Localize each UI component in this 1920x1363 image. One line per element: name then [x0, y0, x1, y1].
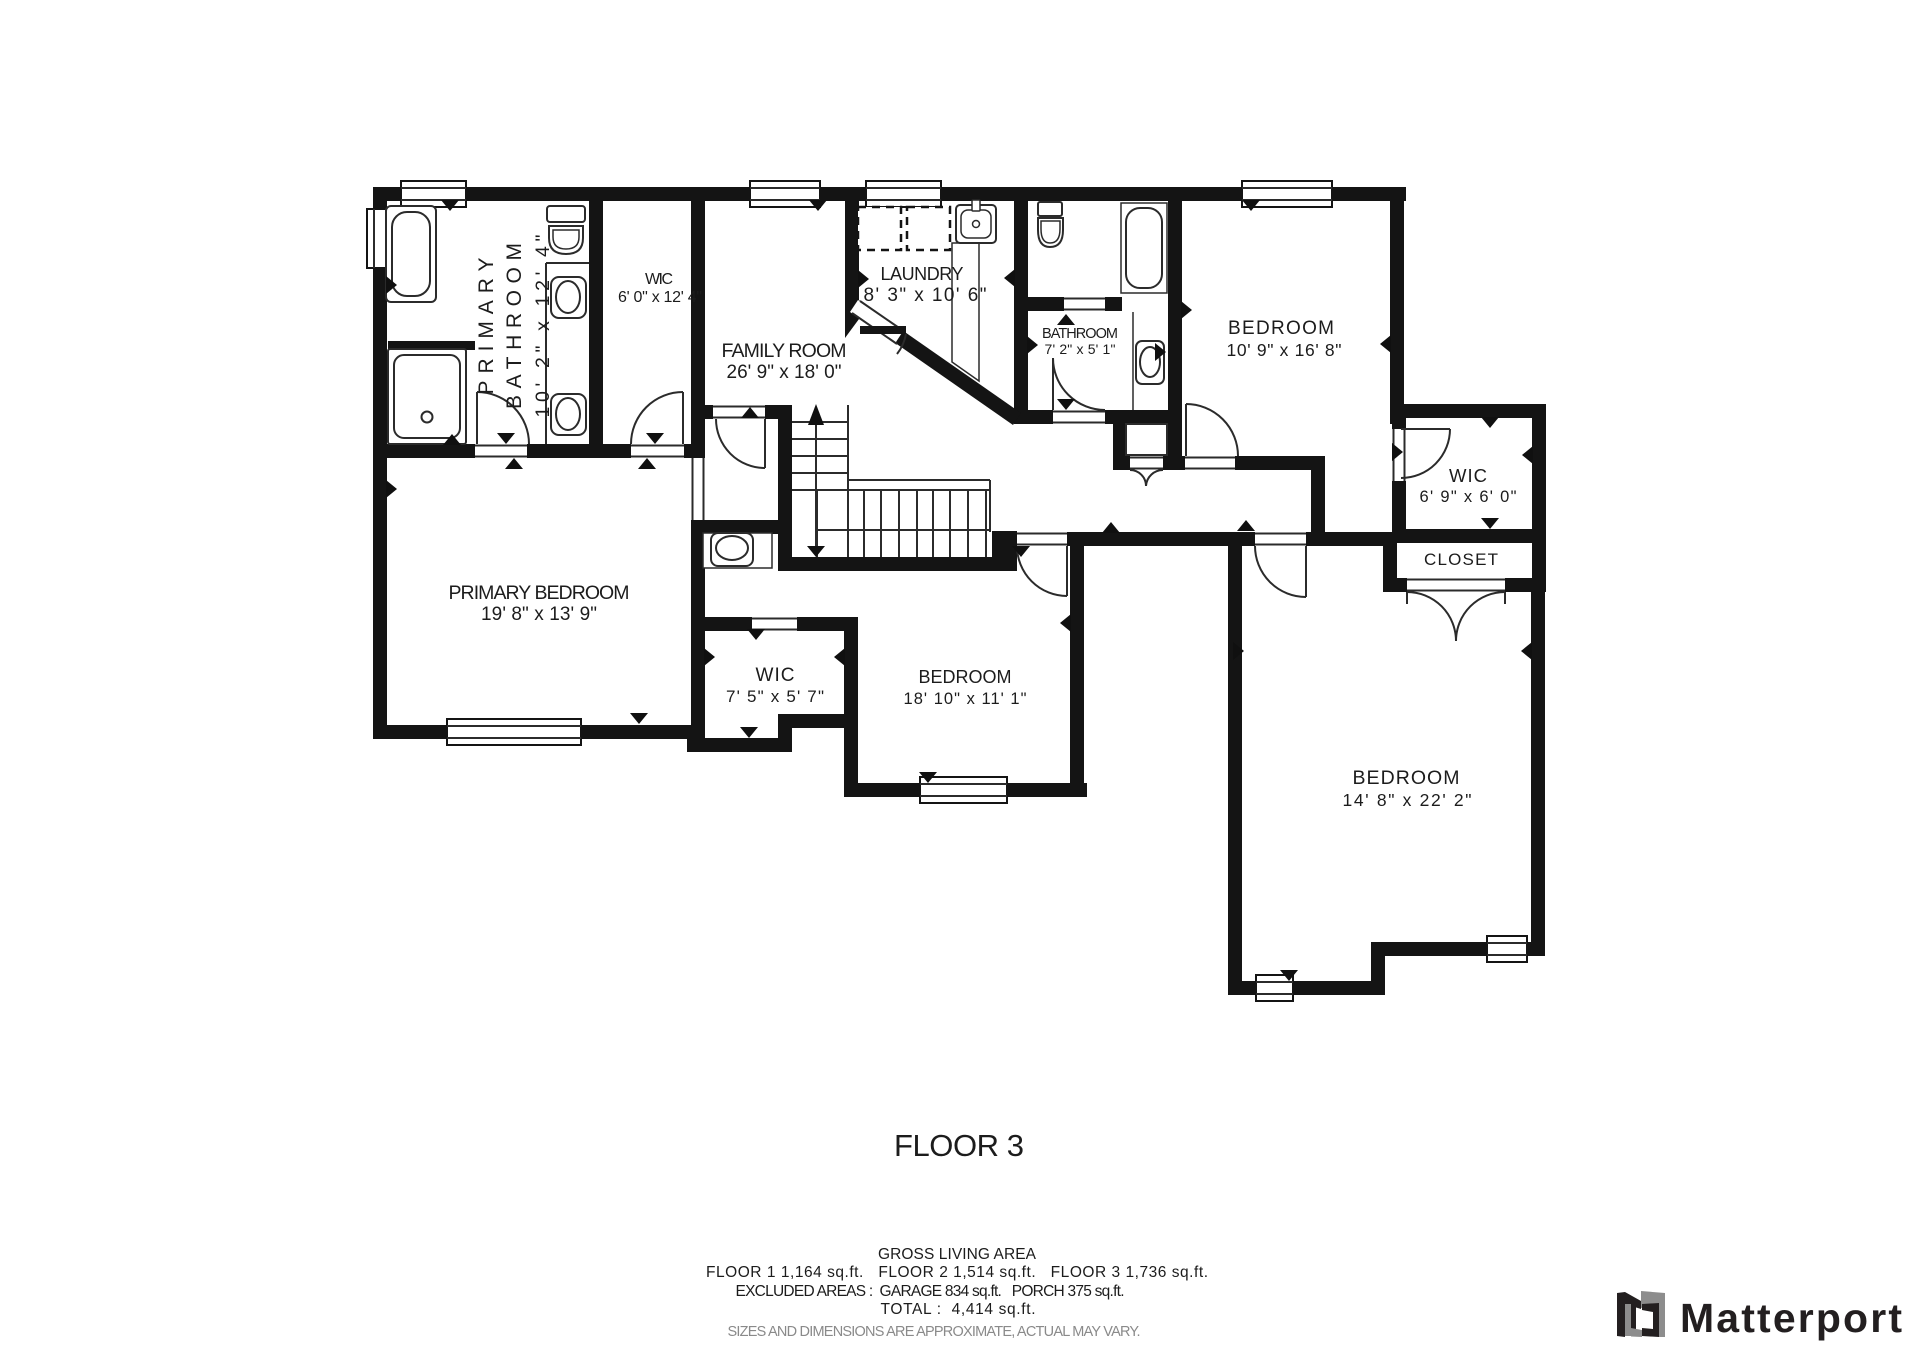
svg-text:WIC: WIC	[756, 665, 795, 686]
svg-text:BEDROOM: BEDROOM	[919, 667, 1012, 687]
svg-text:18' 10" x 11' 1": 18' 10" x 11' 1"	[904, 690, 1027, 708]
svg-text:FLOOR 1 1,164 sq.ft. FLOOR 2: FLOOR 1 1,164 sq.ft. FLOOR 2 1,514 sq.ft…	[706, 1264, 1208, 1281]
svg-text:8' 3" x 10' 6": 8' 3" x 10' 6"	[864, 285, 987, 306]
svg-text:WIC: WIC	[1449, 465, 1487, 486]
svg-text:6' 9" x 6' 0": 6' 9" x 6' 0"	[1420, 488, 1517, 506]
svg-text:6' 0" x 12' 4": 6' 0" x 12' 4"	[618, 289, 702, 306]
svg-text:TOTAL : 4,414 sq.ft.: TOTAL : 4,414 sq.ft.	[881, 1301, 1036, 1318]
svg-text:7' 2" x 5' 1": 7' 2" x 5' 1"	[1045, 341, 1116, 357]
svg-text:WIC: WIC	[645, 271, 673, 288]
svg-text:PRIMARY BEDROOM: PRIMARY BEDROOM	[449, 582, 630, 604]
svg-text:LAUNDRY: LAUNDRY	[881, 264, 964, 284]
svg-text:BATHROOM: BATHROOM	[1042, 326, 1118, 342]
svg-text:BEDROOM: BEDROOM	[1353, 767, 1460, 789]
svg-text:GROSS LIVING AREA: GROSS LIVING AREA	[878, 1246, 1037, 1263]
svg-text:FLOOR 3: FLOOR 3	[894, 1128, 1024, 1163]
svg-text:26' 9" x 18' 0": 26' 9" x 18' 0"	[727, 362, 842, 383]
svg-text:14' 8" x 22' 2": 14' 8" x 22' 2"	[1343, 790, 1472, 810]
svg-text:BATHROOM: BATHROOM	[503, 243, 526, 409]
svg-text:19' 8" x 13' 9": 19' 8" x 13' 9"	[481, 604, 597, 625]
svg-text:BEDROOM: BEDROOM	[1228, 318, 1334, 339]
svg-text:EXCLUDED AREAS : GARAGE 834 s: EXCLUDED AREAS : GARAGE 834 sq.ft. PORCH…	[736, 1283, 1125, 1300]
svg-text:SIZES AND DIMENSIONS ARE APPRO: SIZES AND DIMENSIONS ARE APPROXIMATE, AC…	[728, 1324, 1141, 1340]
svg-text:7' 5" x 5' 7": 7' 5" x 5' 7"	[726, 687, 824, 706]
svg-text:FAMILY ROOM: FAMILY ROOM	[722, 340, 847, 362]
svg-text:CLOSET: CLOSET	[1424, 550, 1498, 569]
svg-text:10' 9" x 16' 8": 10' 9" x 16' 8"	[1227, 340, 1342, 360]
